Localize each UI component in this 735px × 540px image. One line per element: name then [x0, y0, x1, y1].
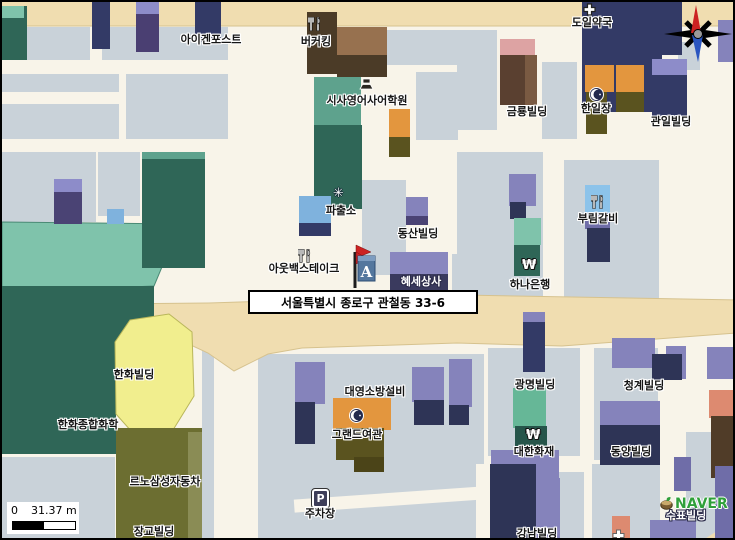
overlay-layer: A — [2, 2, 735, 540]
marker-letter: A — [360, 263, 373, 281]
destination-marker[interactable]: A — [354, 245, 376, 288]
scale-bar: 0 31.37 m — [7, 502, 79, 534]
scale-distance-label: 31.37 m — [31, 504, 77, 517]
address-text: 서울특별시 종로구 관철동 33-6 — [281, 294, 445, 311]
compass-rose — [664, 5, 732, 62]
scale-zero-label: 0 — [11, 504, 18, 517]
address-result-box: 서울특별시 종로구 관철동 33-6 — [248, 290, 478, 314]
scale-bar-graphic — [12, 521, 76, 530]
map-canvas[interactable]: ✳ ₩ ₩P NAVER 아이겐포스트버커킹도일약국시사영어사어학원금룡빌딩한일… — [0, 0, 735, 540]
